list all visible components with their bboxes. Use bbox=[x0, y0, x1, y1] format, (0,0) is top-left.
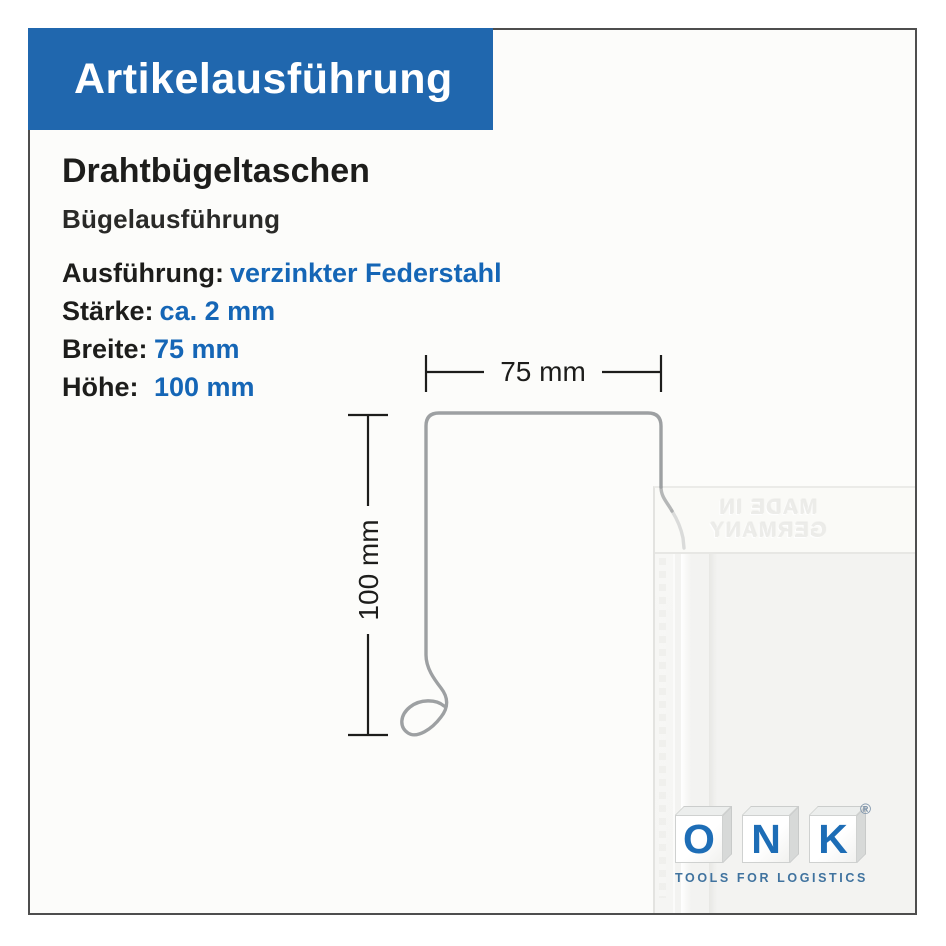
spec-row-staerke: Stärke:ca. 2 mm bbox=[62, 296, 502, 334]
logo-cube-o: O bbox=[675, 815, 723, 863]
height-dimension-label: 100 mm bbox=[353, 519, 384, 620]
spec-value: 75 mm bbox=[154, 334, 240, 364]
spec-row-breite: Breite:75 mm bbox=[62, 334, 502, 372]
cube-right-face bbox=[790, 806, 799, 863]
logo-tagline: TOOLS FOR LOGISTICS bbox=[675, 871, 868, 885]
logo-letter: N bbox=[743, 816, 789, 862]
logo-letter: K bbox=[810, 816, 856, 862]
product-subtitle: Bügelausführung bbox=[62, 204, 280, 235]
registered-trademark-icon: ® bbox=[860, 801, 871, 818]
spec-value: verzinkter Federstahl bbox=[230, 258, 502, 288]
height-dimension: 100 mm bbox=[348, 415, 388, 735]
embossed-line1: MADE IN bbox=[707, 496, 827, 519]
onk-logo: O N K ® TOOLS FOR LOGISTICS bbox=[675, 815, 868, 885]
embossed-text: MADE IN GERMANY bbox=[707, 496, 827, 542]
embossed-line2: GERMANY bbox=[707, 519, 827, 542]
spec-value: ca. 2 mm bbox=[160, 296, 276, 326]
spec-label: Höhe: bbox=[62, 372, 148, 403]
logo-cubes: O N K ® bbox=[675, 815, 868, 863]
product-title: Drahtbügeltaschen bbox=[62, 152, 370, 191]
width-dimension-label: 75 mm bbox=[500, 356, 586, 387]
spec-label: Stärke: bbox=[62, 296, 154, 327]
catalog-page: Artikelausführung Drahtbügeltaschen Büge… bbox=[0, 0, 946, 946]
logo-cube-n: N bbox=[742, 815, 790, 863]
spec-list: Ausführung:verzinkter Federstahl Stärke:… bbox=[62, 258, 502, 410]
spec-row-hoehe: Höhe:100 mm bbox=[62, 372, 502, 410]
cube-right-face bbox=[723, 806, 732, 863]
spec-label: Ausführung: bbox=[62, 258, 224, 289]
logo-letter: O bbox=[676, 816, 722, 862]
spec-row-ausfuehrung: Ausführung:verzinkter Federstahl bbox=[62, 258, 502, 296]
header-bar: Artikelausführung bbox=[28, 28, 493, 130]
spec-value: 100 mm bbox=[154, 372, 255, 402]
page-title: Artikelausführung bbox=[28, 55, 453, 104]
wire-bracket bbox=[402, 413, 684, 735]
spec-label: Breite: bbox=[62, 334, 148, 365]
logo-cube-k: K bbox=[809, 815, 857, 863]
